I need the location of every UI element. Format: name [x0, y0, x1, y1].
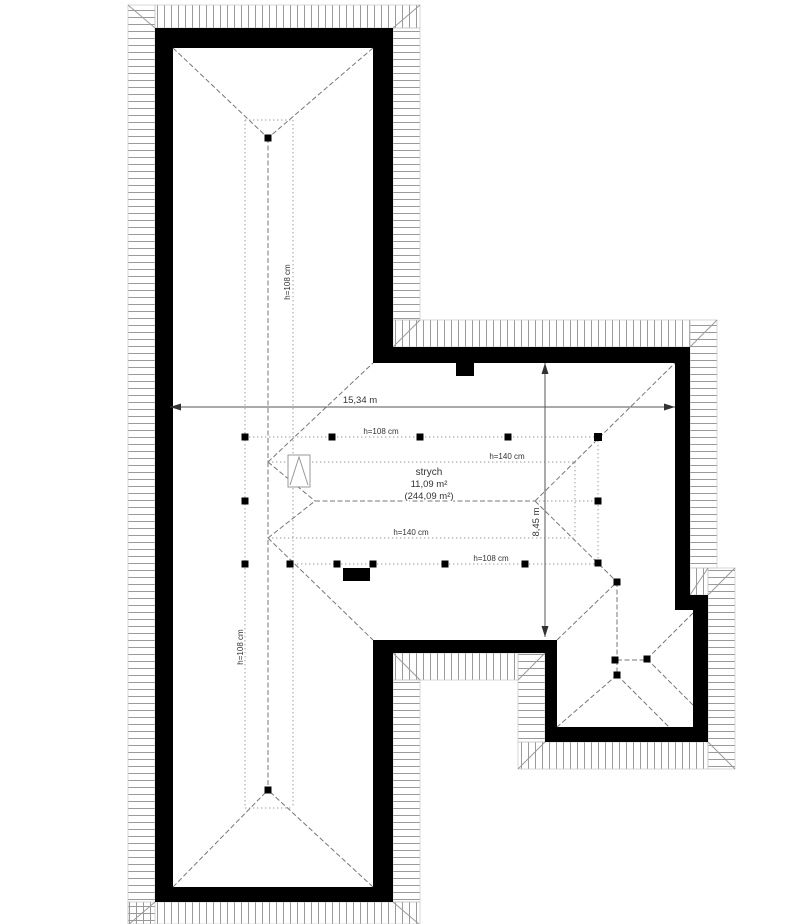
hatch-band-top-wing-top: [155, 5, 420, 28]
hatch-band-notch-bottom: [393, 653, 518, 680]
hatch-miter-joints: [128, 5, 735, 924]
post-marker: [242, 498, 249, 505]
post-marker: [522, 561, 529, 568]
dimension-depth-label: 8,45 m: [531, 507, 542, 536]
post-marker: [265, 787, 272, 794]
post-marker: [594, 433, 602, 441]
height-label-h108: h=108 cm: [363, 427, 399, 436]
post-marker: [614, 672, 621, 679]
hatch-band-main-right: [690, 320, 717, 568]
exterior-walls: [155, 28, 708, 902]
post-marker: [329, 434, 336, 441]
hatch-band-top-wing-right: [393, 28, 420, 320]
roof-window-icon: [288, 455, 310, 487]
roof-overhang-hatch: [128, 5, 735, 924]
post-marker: [595, 498, 602, 505]
post-marker: [417, 434, 424, 441]
chimney: [343, 568, 370, 581]
hatch-band-bay-right: [708, 568, 735, 769]
height-label-h108: h=108 cm: [236, 629, 245, 665]
floor-plan-drawing: 15,34 m 8,45 m h=108 cm h=140 cm h=140 c…: [0, 0, 801, 924]
hatch-band-bottom-wing-bottom: [128, 902, 420, 924]
chimneys: [343, 360, 474, 581]
hatch-band-main-top: [393, 320, 690, 347]
post-marker: [644, 656, 651, 663]
post-marker: [370, 561, 377, 568]
room-area-total-label: (244,09 m²): [404, 491, 453, 502]
hatch-band-right-section-bottom: [518, 742, 708, 769]
post-marker: [334, 561, 341, 568]
post-marker: [265, 135, 272, 142]
post-marker: [612, 657, 619, 664]
post-marker: [595, 560, 602, 567]
hatch-band-notch-right: [393, 680, 420, 902]
height-label-h108: h=108 cm: [283, 264, 292, 300]
post-marker: [287, 561, 294, 568]
height-label-h140: h=140 cm: [489, 452, 525, 461]
room-name-label: strych: [416, 467, 443, 478]
post-marker: [505, 434, 512, 441]
dimension-width-label: 15,34 m: [343, 395, 377, 406]
post-marker: [614, 579, 621, 586]
post-marker: [442, 561, 449, 568]
chimney: [456, 360, 474, 376]
post-marker: [242, 434, 249, 441]
room-area-label: 11,09 m²: [411, 479, 448, 490]
height-label-h108: h=108 cm: [473, 554, 509, 563]
post-marker: [242, 561, 249, 568]
height-label-h140: h=140 cm: [393, 528, 429, 537]
attic-floor-plan-page: 15,34 m 8,45 m h=108 cm h=140 cm h=140 c…: [0, 0, 801, 924]
hatch-band-left: [128, 5, 155, 924]
